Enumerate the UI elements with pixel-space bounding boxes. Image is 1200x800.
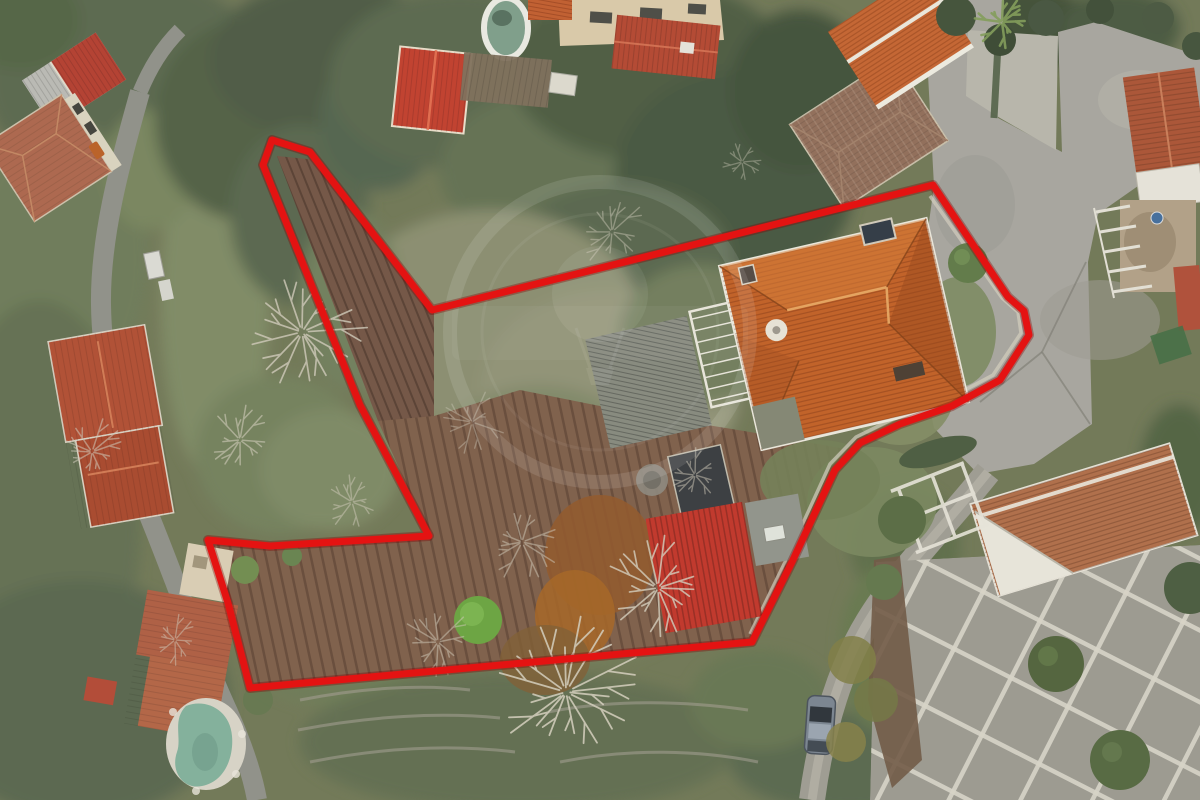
aerial-photo [0, 0, 1200, 800]
aerial-photo-viewport [0, 0, 1200, 800]
photo-haze [0, 0, 1200, 800]
